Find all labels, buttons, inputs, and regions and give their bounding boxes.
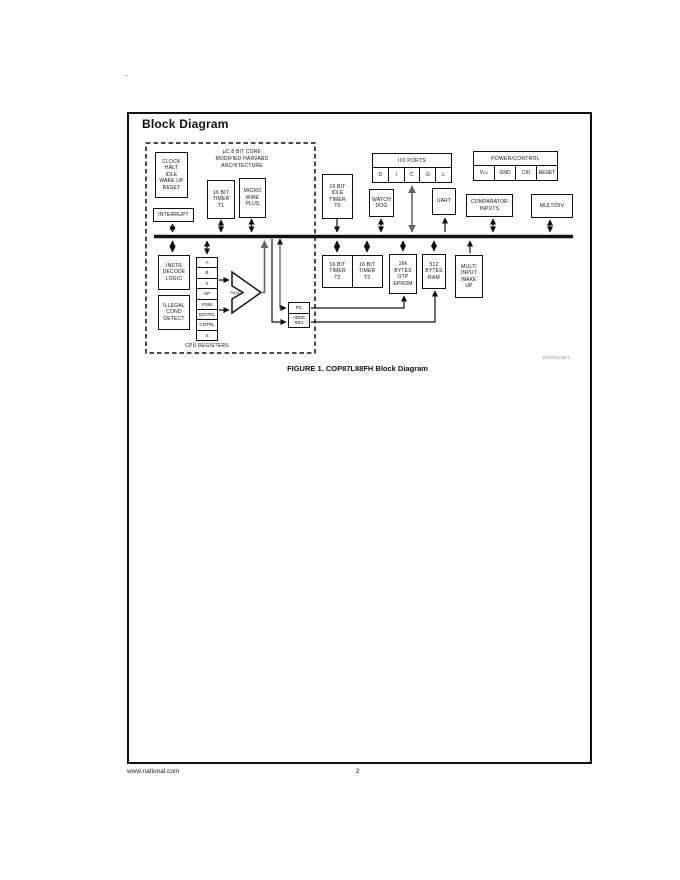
- io-port-c: C: [404, 168, 420, 182]
- box-comparator-inputs: COMPARATOR INPUTS: [466, 194, 513, 217]
- footer-page-number: 2: [127, 768, 588, 775]
- box-ram: 512 BYTES RAM: [422, 254, 446, 289]
- box-otp-eprom: 16k BYTES OTP EPROM: [389, 254, 417, 294]
- diagram-wires: [0, 0, 680, 880]
- power-pin-reset: RESET: [536, 166, 557, 180]
- io-ports-title: I/O PORTS: [373, 154, 451, 168]
- box-io-ports: I/O PORTS D I C G L: [372, 153, 452, 183]
- box-microwire-plus: MICRO WIRE PLUS: [239, 178, 266, 218]
- power-pin-vcc: VCC: [474, 166, 494, 180]
- document-page-canvas: . Block Diagram: [0, 0, 680, 880]
- core-architecture-label: µC 8 BIT CORE MODIFIED HARVARD ARCHITECT…: [196, 149, 288, 169]
- box-multi-input-wakeup: MULTI INPUT WAKE UP: [455, 255, 483, 298]
- box-timer-t2: 16 BIT TIMER T2: [322, 255, 353, 288]
- box-power-control: POWER/CONTROL VCC GND CKI RESET: [473, 151, 558, 181]
- box-timer-t1: 16 BIT TIMER T1: [207, 180, 235, 219]
- power-control-title: POWER/CONTROL: [474, 152, 557, 166]
- cpu-registers-label: CPU REGISTERS: [157, 343, 257, 350]
- box-watchdog: WATCH DOG: [369, 189, 394, 217]
- io-port-d: D: [373, 168, 388, 182]
- power-pin-gnd: GND: [494, 166, 515, 180]
- register-cntrl: CNTRL: [197, 319, 217, 329]
- register-x: X: [197, 278, 217, 288]
- register-pc: PC: [289, 303, 309, 313]
- box-illegal-cond-detect: ILLEGAL COND DETECT: [158, 295, 190, 330]
- pc-addr-reg-stack: PC ADDR REG: [288, 302, 310, 328]
- register-b: B: [197, 267, 217, 277]
- box-idle-timer-t0: 16 BIT IDLE TIMER T0: [322, 174, 353, 219]
- register-addr-reg: ADDR REG: [289, 313, 309, 327]
- power-pin-cki: CKI: [515, 166, 536, 180]
- register-psw: PSW: [197, 299, 217, 309]
- register-sp: SP: [197, 288, 217, 298]
- figure-caption: FIGURE 1. COP87L88FH Block Diagram: [127, 364, 588, 373]
- register-icntrl: ICNTRL: [197, 309, 217, 319]
- box-instr-decode-logic: INSTR DECODE LOGIC: [158, 255, 190, 290]
- ds-reference-number: DS101136-1: [543, 355, 570, 360]
- cpu-register-file: A B X SP PSW ICNTRL CNTRL S: [196, 257, 218, 341]
- io-port-i: I: [388, 168, 404, 182]
- register-s: S: [197, 330, 217, 340]
- io-port-g: G: [419, 168, 435, 182]
- box-uart: UART: [432, 188, 456, 215]
- io-port-l: L: [435, 168, 451, 182]
- box-interrupt: INTERRUPT: [153, 208, 194, 222]
- vcc-sub: CC: [483, 171, 488, 175]
- box-timer-t3: 16 BIT TIMER T3: [352, 255, 383, 288]
- alu-label: ALU: [226, 290, 244, 296]
- box-mult-div: MULT/DIV: [531, 194, 573, 218]
- register-a: A: [197, 258, 217, 267]
- box-clock-control: CLOCK HALT IDLE WAKE UP RESET: [155, 152, 188, 198]
